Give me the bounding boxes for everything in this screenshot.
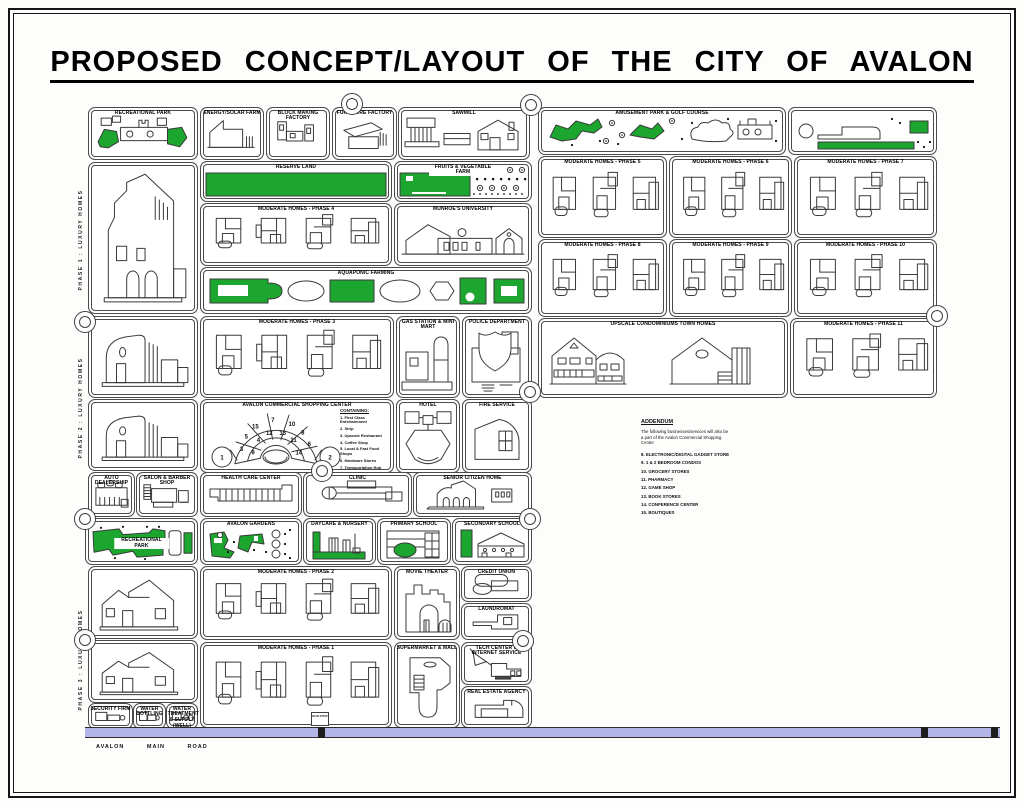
moderate-homes-phase-11-label: MODERATE HOMES - PHASE 11	[794, 322, 933, 328]
recreational-park-south-label: RECREATIONAL PARK	[114, 538, 170, 550]
roundabout	[74, 311, 96, 333]
luxury-home-block-4	[88, 566, 198, 639]
hotel-drawing	[400, 403, 456, 469]
svg-text:8: 8	[301, 431, 305, 437]
addendum-item: 13. BOOK STORES	[641, 494, 761, 499]
roundabout-inner-ring	[346, 98, 358, 110]
movie-theater-label: MOVIE THEATER	[396, 570, 457, 576]
city-plan-canvas: PROPOSED CONCEPT/LAYOUT OF THE CITY OF A…	[0, 0, 1024, 806]
senior-citizen-home-drawing	[417, 476, 528, 513]
supermarket-mall: SUPERMARKET & MALL	[394, 642, 460, 728]
movie-theater: MOVIE THEATER	[394, 566, 460, 640]
health-care-center-label: HEALTH CARE CENTER	[203, 476, 299, 482]
roundabout	[341, 93, 363, 115]
upscale-condominiums-townhomes-label: UPSCALE CONDOMINIUMS TOWN HOMES	[544, 322, 782, 328]
hotel-label: HOTEL	[398, 403, 458, 409]
luxury-home-block-1-drawing	[92, 166, 194, 310]
energy-solar-farm-label: ENERGY/SOLAR FARM	[202, 111, 262, 117]
roundabout-inner-ring	[524, 513, 536, 525]
moderate-homes-phase-3-label: MODERATE HOMES - PHASE 3	[205, 320, 389, 326]
moderate-homes-phase-8-drawing	[542, 243, 663, 313]
moderate-homes-phase-2-drawing	[204, 570, 388, 636]
luxury-home-block-3-drawing	[92, 403, 194, 467]
aquaponic-farming-label: AQUAPONIC FARMING	[208, 271, 525, 277]
daycare-nursery-label: DAYCARE & NURSERY	[305, 522, 373, 528]
recreational-park-south: RECREATIONAL PARK	[85, 518, 198, 565]
real-estate-agency-label: REAL ESTATE AGENCY	[463, 690, 529, 696]
amusement-park-golf-course: AMUSEMENT PARK & GOLF COURSE	[538, 107, 786, 155]
health-care-center: HEALTH CARE CENTER	[200, 472, 302, 517]
water-treatment: WATER TREATMENT & SUPPLY (WELL)	[166, 703, 198, 729]
moderate-homes-phase-7-label: MODERATE HOMES - PHASE 7	[798, 160, 933, 166]
roundabout	[74, 508, 96, 530]
moderate-homes-phase-8: MODERATE HOMES - PHASE 8	[538, 239, 667, 317]
addendum-item: 11. PHARMACY	[641, 477, 761, 482]
auto-dealership: AUTO DEALERSHIP	[88, 472, 135, 517]
fire-service-drawing	[466, 403, 528, 469]
gas-station-mini-mart-drawing	[400, 320, 456, 394]
luxury-home-block-3	[88, 399, 198, 471]
roundabout	[926, 305, 948, 327]
phase-2-luxury-homes-label: PHASE 2 : LUXURY HOMES	[78, 357, 84, 458]
shopping-center-containing-list: CONTAINING:1. First Class Entertainment2…	[340, 408, 390, 473]
laundromat-label: LAUNDROMAT	[463, 607, 529, 613]
moderate-homes-phase-1-drawing	[204, 646, 388, 724]
roundabout-inner-ring	[524, 386, 536, 398]
luxury-home-block-1	[88, 162, 198, 314]
reserve-land-label: RESERVE LAND	[273, 165, 319, 171]
moderate-homes-phase-1: MODERATE HOMES - PHASE 1	[200, 642, 392, 728]
svg-text:13: 13	[279, 431, 286, 437]
moderate-homes-phase-5-drawing	[542, 160, 663, 234]
moderate-homes-phase-7-drawing	[798, 160, 933, 234]
luxury-home-block-4-drawing	[92, 570, 194, 635]
svg-text:11: 11	[290, 438, 297, 444]
moderate-homes-phase-4: MODERATE HOMES - PHASE 4	[200, 203, 392, 266]
senior-citizen-home: SENIOR CITIZEN HOME	[413, 472, 532, 517]
luxury-home-block-5	[88, 640, 198, 703]
svg-text:5: 5	[245, 434, 249, 440]
roundabout-inner-ring	[931, 310, 943, 322]
addendum-item: 12. GAME SHOP	[641, 485, 761, 490]
furniture-factory-drawing	[336, 111, 393, 156]
moderate-homes-phase-3: MODERATE HOMES - PHASE 3	[200, 316, 394, 398]
phase-1-luxury-homes-label: PHASE 1 : LUXURY HOMES	[78, 189, 84, 290]
svg-text:10: 10	[289, 422, 296, 428]
addendum-intro: The following businesses/services will a…	[641, 429, 731, 446]
svg-text:3: 3	[240, 447, 244, 453]
fruits-vegetable-farm-label: FRUITS & VEGETABLE FARM	[429, 165, 497, 177]
gas-station-mini-mart: GAS STATION & MINI MART	[396, 316, 460, 398]
containing-title: CONTAINING:	[340, 408, 390, 413]
auto-dealership-label: AUTO DEALERSHIP	[90, 476, 133, 488]
amusement-park-east	[788, 107, 937, 155]
avalon-gardens-label: AVALON GARDENS	[203, 522, 299, 528]
addendum-title: ADDENDUM	[641, 419, 761, 425]
water-bottling: WATER BOTTLING	[133, 703, 166, 729]
moderate-homes-phase-9-label: MODERATE HOMES - PHASE 9	[672, 243, 788, 249]
svg-text:9: 9	[251, 451, 255, 457]
avalon-commercial-shopping-center: 351571086941213111412AVALON COMMERCIAL S…	[200, 399, 394, 473]
block-making-factory-label: BLOCK MAKING FACTORY	[268, 111, 328, 123]
page-title: PROPOSED CONCEPT/LAYOUT OF THE CITY OF A…	[0, 46, 1024, 83]
svg-text:15: 15	[252, 425, 259, 431]
sawmill-label: SAWMILL	[402, 111, 527, 117]
secondary-school-drawing	[456, 522, 528, 561]
moderate-homes-phase-6-drawing	[673, 160, 788, 234]
hotel: HOTEL	[396, 399, 460, 473]
svg-text:7: 7	[271, 418, 275, 424]
avalon-gardens-drawing	[204, 522, 298, 561]
addendum-item: 14. CONFERENCE CENTER	[641, 502, 761, 507]
moderate-homes-phase-4-drawing	[204, 207, 388, 262]
svg-text:1: 1	[220, 456, 224, 462]
containing-item: 1. First Class Entertainment	[340, 416, 390, 426]
daycare-nursery: DAYCARE & NURSERY	[303, 518, 376, 565]
luxury-home-block-5-drawing	[92, 644, 194, 699]
road-crossing-mark	[921, 727, 928, 738]
roundabout-inner-ring	[517, 635, 529, 647]
reserve-land: RESERVE LAND	[200, 161, 392, 202]
energy-solar-farm-drawing	[204, 111, 260, 156]
energy-solar-farm: ENERGY/SOLAR FARM	[200, 107, 264, 160]
containing-item: 6. Hardware Stores	[340, 459, 390, 464]
road-crossing-mark	[318, 727, 325, 738]
containing-item: 3. Upscale Restaurant	[340, 434, 390, 439]
supermarket-mall-label: SUPERMARKET & MALL	[396, 646, 457, 652]
roundabout	[74, 629, 96, 651]
salon-barber-shop-label: SALON & BARBER SHOP	[138, 476, 196, 488]
salon-barber-shop: SALON & BARBER SHOP	[136, 472, 198, 517]
addendum-item: 15. BOUTIQUES	[641, 510, 761, 515]
moderate-homes-phase-11: MODERATE HOMES - PHASE 11	[790, 318, 937, 398]
sawmill: SAWMILL	[398, 107, 530, 160]
moderate-homes-phase-10-drawing	[798, 243, 933, 313]
daycare-nursery-drawing	[307, 522, 372, 561]
moderate-homes-phase-4-label: MODERATE HOMES - PHASE 4	[205, 207, 387, 213]
moderate-homes-phase-9: MODERATE HOMES - PHASE 9	[669, 239, 792, 317]
real-estate-agency: REAL ESTATE AGENCY	[461, 686, 532, 728]
security-firm: SECURITY FIRM	[88, 703, 133, 729]
furniture-factory: FURNITURE FACTORY	[332, 107, 397, 160]
primary-school: PRIMARY SCHOOL	[377, 518, 451, 565]
moderate-homes-phase-5-label: MODERATE HOMES - PHASE 5	[542, 160, 664, 166]
senior-citizen-home-label: SENIOR CITIZEN HOME	[416, 476, 528, 482]
roundabout-inner-ring	[525, 99, 537, 111]
munroes-university-drawing	[398, 207, 528, 262]
containing-item: 2. Strip	[340, 427, 390, 432]
roundabout	[512, 630, 534, 652]
block-making-factory: BLOCK MAKING FACTORY	[266, 107, 330, 160]
containing-item: 4. Coffee Shop	[340, 441, 390, 446]
addendum-item: 9. 1 & 2 BEDROOM CONDOS	[641, 460, 761, 465]
fire-service-label: FIRE SERVICE	[464, 403, 529, 409]
svg-text:4: 4	[257, 438, 261, 444]
addendum-items: 8. ELECTRONIC/DIGITAL GADGET STORE9. 1 &…	[641, 452, 761, 516]
moderate-homes-phase-8-label: MODERATE HOMES - PHASE 8	[542, 243, 664, 249]
upscale-condominiums-townhomes-drawing	[542, 322, 784, 394]
roundabout	[519, 508, 541, 530]
luxury-home-block-2	[88, 316, 198, 398]
moderate-homes-phase-10-label: MODERATE HOMES - PHASE 10	[798, 243, 933, 249]
addendum-item: 8. ELECTRONIC/DIGITAL GADGET STORE	[641, 452, 761, 457]
primary-school-label: PRIMARY SCHOOL	[379, 522, 448, 528]
roundabout	[520, 94, 542, 116]
roundabout-inner-ring	[316, 465, 328, 477]
gas-station-mini-mart-label: GAS STATION & MINI MART	[398, 320, 458, 332]
addendum: ADDENDUM The following businesses/servic…	[641, 419, 761, 519]
avalon-main-road	[85, 727, 1000, 738]
supermarket-mall-drawing	[398, 646, 456, 724]
moderate-homes-phase-6-label: MODERATE HOMES - PHASE 6	[672, 160, 788, 166]
avalon-gardens: AVALON GARDENS	[200, 518, 302, 565]
recreational-park-north-drawing	[92, 111, 194, 156]
munroes-university: MUNROE'S UNIVERSITY	[394, 203, 532, 266]
roundabout	[519, 381, 541, 403]
amusement-park-east-drawing	[792, 111, 933, 151]
amusement-park-golf-course-label: AMUSEMENT PARK & GOLF COURSE	[612, 111, 711, 117]
security-firm-label: SECURITY FIRM	[90, 707, 131, 713]
secondary-school-label: SECONDARY SCHOOL	[455, 522, 530, 528]
water-bottling-label: WATER BOTTLING	[135, 707, 165, 719]
svg-text:14: 14	[296, 451, 303, 457]
roundabout	[311, 460, 333, 482]
recreational-park-north-label: RECREATIONAL PARK	[91, 111, 195, 117]
aquaponic-farming-drawing	[204, 271, 528, 310]
moderate-homes-phase-9-drawing	[673, 243, 788, 313]
munroes-university-label: MUNROE'S UNIVERSITY	[398, 207, 529, 213]
fruits-vegetable-farm: FRUITS & VEGETABLE FARM	[394, 161, 532, 202]
svg-text:12: 12	[266, 431, 273, 437]
road-crossing-mark	[991, 727, 998, 738]
moderate-homes-phase-7: MODERATE HOMES - PHASE 7	[794, 156, 937, 238]
roundabout-inner-ring	[79, 634, 91, 646]
credit-union-label: CREDIT UNION	[463, 570, 529, 576]
sawmill-drawing	[402, 111, 526, 156]
svg-text:2: 2	[328, 456, 332, 462]
aquaponic-farming: AQUAPONIC FARMING	[200, 267, 532, 314]
amusement-park-golf-course-drawing	[542, 111, 782, 151]
roundabout-inner-ring	[79, 513, 91, 525]
containing-item: 7. Transportation Hub	[340, 466, 390, 471]
moderate-homes-phase-2-label: MODERATE HOMES - PHASE 2	[205, 570, 387, 576]
primary-school-drawing	[381, 522, 447, 561]
moderate-homes-phase-1-label: MODERATE HOMES - PHASE 1	[205, 646, 387, 652]
moderate-homes-phase-11-drawing	[794, 322, 933, 394]
addendum-item: 10. GROCERY STORES	[641, 469, 761, 474]
roundabout-inner-ring	[79, 316, 91, 328]
movie-theater-drawing	[398, 570, 456, 636]
moderate-homes-phase-10: MODERATE HOMES - PHASE 10	[794, 239, 937, 317]
upscale-condominiums-townhomes: UPSCALE CONDOMINIUMS TOWN HOMES	[538, 318, 788, 398]
fire-service: FIRE SERVICE	[462, 399, 532, 473]
moderate-homes-phase-2: MODERATE HOMES - PHASE 2	[200, 566, 392, 640]
credit-union: CREDIT UNION	[461, 566, 532, 602]
health-care-center-drawing	[204, 476, 298, 513]
moderate-homes-phase-6: MODERATE HOMES - PHASE 6	[669, 156, 792, 238]
bus-stop-sign: BUS STOP	[311, 712, 329, 726]
page-title-text: PROPOSED CONCEPT/LAYOUT OF THE CITY OF A…	[50, 46, 973, 83]
moderate-homes-phase-5: MODERATE HOMES - PHASE 5	[538, 156, 667, 238]
phase-3-luxury-homes-label: PHASE 3 : LUXURY HOMES	[78, 609, 84, 710]
police-department-label: POLICE DEPARTMENT	[464, 320, 529, 326]
police-department-drawing	[466, 320, 528, 394]
recreational-park-north: RECREATIONAL PARK	[88, 107, 198, 160]
moderate-homes-phase-3-drawing	[204, 320, 390, 394]
luxury-home-block-2-drawing	[92, 320, 194, 394]
containing-item: 5. Local & Fast Food Shops	[340, 447, 390, 457]
road-label: AVALON MAIN ROAD	[96, 744, 208, 750]
